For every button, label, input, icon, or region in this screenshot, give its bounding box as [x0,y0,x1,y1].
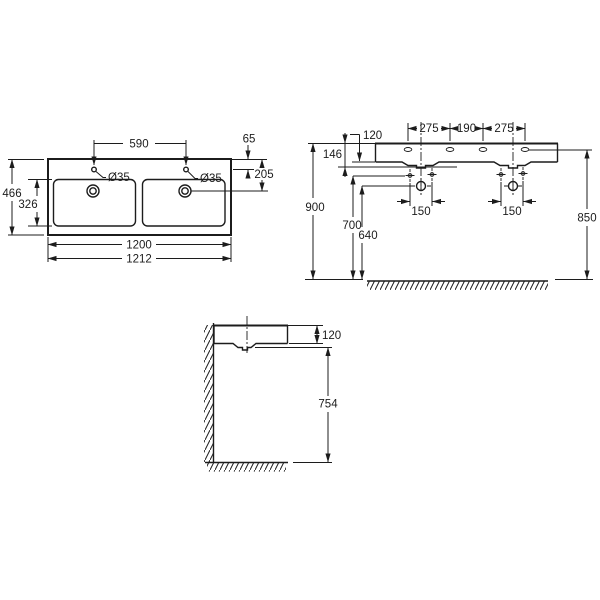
dim-326: 326 [18,180,52,227]
dim-754: 754 [255,348,338,463]
plan-right-drain [179,185,191,197]
dim-tap-spacings: 275 190 275 [408,123,525,141]
dim-label-rim-height: 900 [305,202,324,214]
fixing-hole [406,169,415,182]
dia35-right: Ø35 [188,172,222,186]
dim-label-apron-height-front: 120 [363,130,382,142]
dim-590: 590 [94,139,186,166]
plan-left-bowl [54,180,136,227]
plan-outline [48,159,231,235]
front-ground [305,280,593,291]
plan-right-bowl [143,180,226,227]
washbasin-dimension-drawing: 590 Ø35 Ø35 65 205 [0,0,600,600]
plan-view: 590 Ø35 Ø35 65 205 [2,134,273,266]
plan-left-drain [87,185,99,197]
dim-label-apron-height-side: 120 [322,330,341,342]
dim-900: 900 [305,144,375,280]
dim-label-drain-edge-offset: 205 [254,169,273,181]
dim-label-tap-spacing-left: 275 [419,123,438,135]
dim-466: 466 [2,160,44,236]
front-outline [375,144,558,169]
dim-1212: 1212 [48,254,231,266]
dim-label-tap-edge-offset: 65 [243,134,256,146]
dim-label-tap-spacing-right: 275 [494,123,513,135]
fixing-hole [428,168,437,181]
dim-150-right: 150 [488,181,536,218]
dim-label-tap-diameter-left: Ø35 [108,172,130,184]
front-view: 275 190 275 120 146 [305,122,597,290]
dim-label-fixing-spacing-right: 150 [502,206,521,218]
plan-left-tap-hole [92,167,97,172]
dim-label-fixing-spacing-left: 150 [411,206,430,218]
dim-120-side: 120 [288,326,341,344]
dim-850: 850 [529,150,597,279]
dim-label-tap-diameter-right: Ø35 [200,173,222,185]
dim-640: 640 [358,186,415,279]
dim-label-fixture-depth: 146 [323,149,342,161]
dim-label-clearance: 754 [318,399,338,411]
dia35-left: Ø35 [96,172,130,185]
technical-drawing-canvas: 590 Ø35 Ø35 65 205 [0,0,600,600]
dim-700: 700 [342,176,405,279]
dim-label-drain-height: 640 [358,230,377,242]
fixing-hole [497,168,506,181]
dim-label-tap-spacing: 590 [129,139,148,151]
dim-label-tap-deck-height: 850 [577,213,596,225]
side-floor [205,463,332,472]
dim-146: 146 [323,133,457,177]
dim-label-ceramic-width: 1200 [126,240,152,252]
front-tap-holes [404,148,529,152]
dim-label-tap-spacing-center: 190 [457,123,476,135]
dim-label-bowl-depth: 326 [18,199,37,211]
dim-120-front: 120 [350,130,382,162]
side-wall [204,323,214,462]
side-basin-profile [213,326,288,351]
side-view: 120 754 [204,316,341,472]
fixing-hole [519,167,528,180]
dim-label-overall-width: 1212 [126,254,152,266]
plan-right-tap-hole [184,167,189,172]
fixing-holes [406,167,528,182]
